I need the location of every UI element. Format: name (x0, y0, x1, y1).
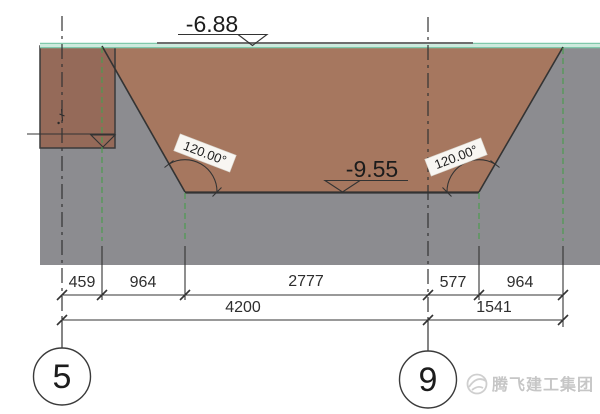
grid-bubble-9-label: 9 (419, 361, 438, 399)
ground-elevation-value: -6.88 (186, 11, 238, 37)
ground-surface-line (40, 43, 600, 48)
grid-bubble-5-label: 5 (53, 358, 72, 396)
dim-value-4200: 4200 (225, 299, 261, 316)
dimension-row-1: 459 964 2777 577 964 (57, 273, 568, 300)
dim-value-2777: 2777 (288, 273, 324, 290)
watermark-logo-icon (468, 375, 487, 394)
excavation-section-drawing: -6.88 -9.55 120.00° 120.00° (0, 0, 600, 414)
drawing-canvas: -6.88 -9.55 120.00° 120.00° (0, 0, 600, 414)
grid-bubble-9: 9 (400, 351, 457, 408)
dim-value-1541: 1541 (476, 299, 512, 316)
watermark: 腾飞建工集团 (468, 375, 595, 395)
dim-value-577: 577 (440, 274, 467, 291)
grid-bubble-5: 5 (34, 348, 91, 405)
watermark-text: 腾飞建工集团 (492, 375, 594, 394)
dim-value-459: 459 (69, 274, 96, 291)
existing-pit-box (40, 46, 115, 148)
dim-value-964-left: 964 (130, 274, 157, 291)
dim-value-964-right: 964 (507, 274, 534, 291)
elevation-marker-ground: -6.88 (178, 11, 267, 46)
dimension-row-2: 4200 1541 (57, 299, 568, 325)
pit-bottom-elevation-value: -9.55 (346, 156, 398, 182)
